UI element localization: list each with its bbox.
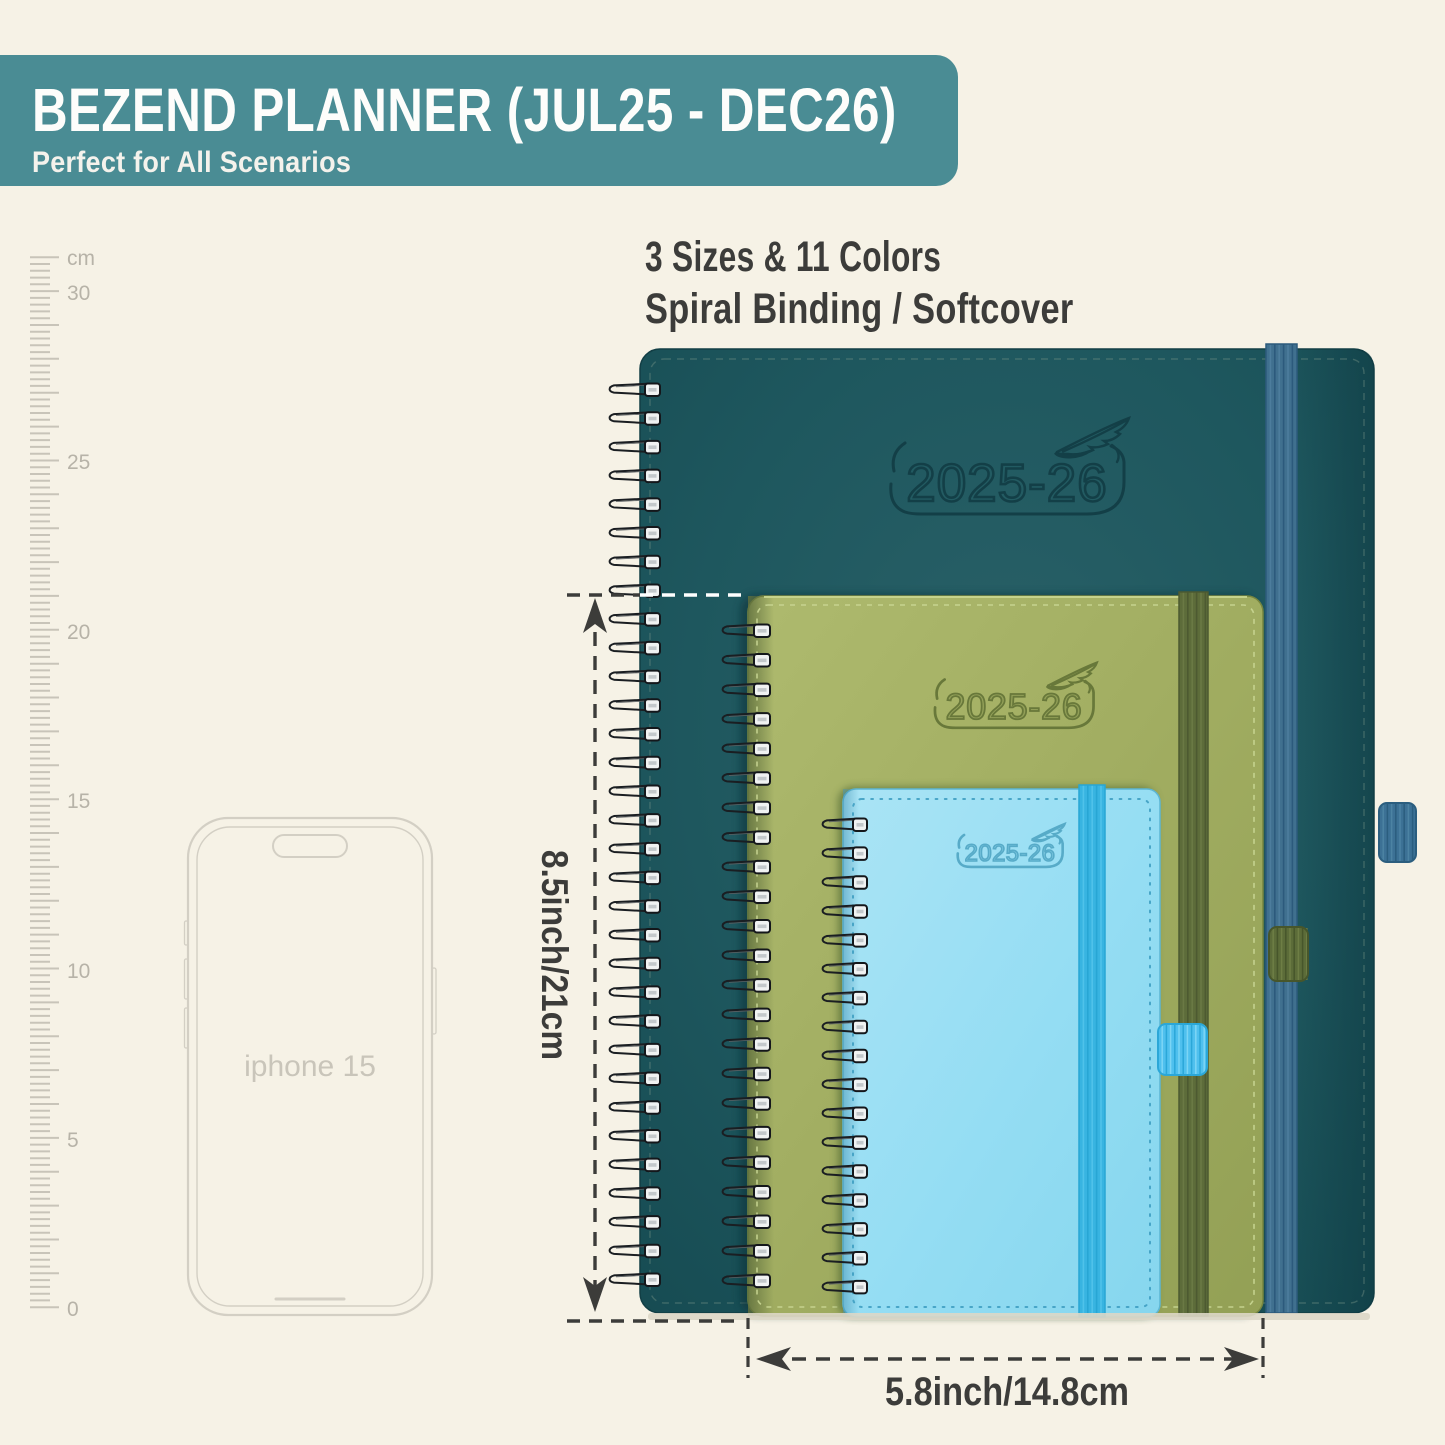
svg-text:Perfect for All Scenarios: Perfect for All Scenarios [32,146,351,180]
svg-text:2025-26: 2025-26 [945,686,1082,727]
svg-text:Spiral Binding / Softcover: Spiral Binding / Softcover [645,285,1074,332]
svg-text:2025-26: 2025-26 [965,840,1056,867]
svg-text:BEZEND PLANNER (JUL25 - DEC26): BEZEND PLANNER (JUL25 - DEC26) [32,76,897,144]
svg-text:10: 10 [67,960,90,983]
svg-text:15: 15 [67,790,90,813]
svg-text:25: 25 [67,451,90,474]
svg-text:5.8inch/14.8cm: 5.8inch/14.8cm [885,1369,1129,1414]
svg-text:30: 30 [67,282,90,305]
svg-text:0: 0 [67,1298,79,1321]
svg-text:cm: cm [67,247,95,270]
svg-text:2025-26: 2025-26 [906,454,1108,513]
svg-text:3 Sizes & 11 Colors: 3 Sizes & 11 Colors [645,233,941,281]
svg-text:iphone 15: iphone 15 [244,1050,376,1083]
svg-text:5: 5 [67,1129,79,1152]
svg-text:8.5inch/21cm: 8.5inch/21cm [534,850,575,1060]
svg-text:20: 20 [67,621,90,644]
